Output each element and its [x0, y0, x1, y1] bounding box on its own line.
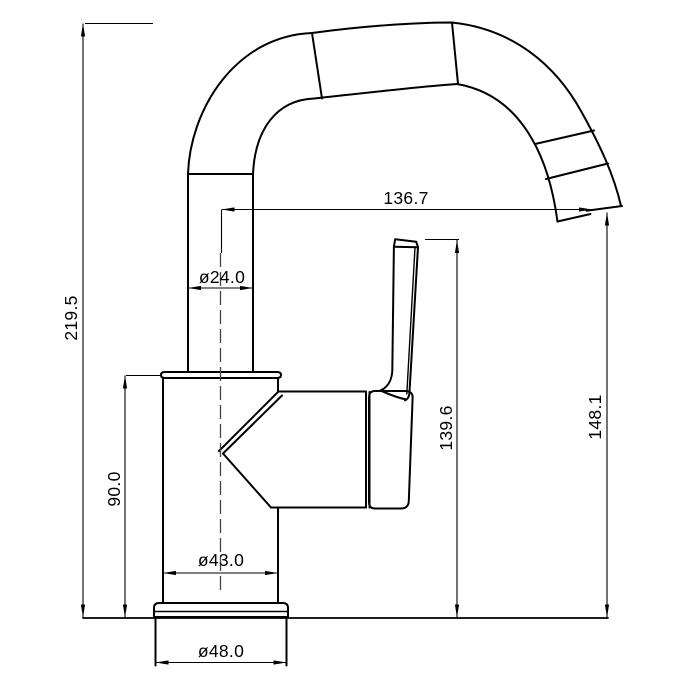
dim-label-pipe-diameter: ø24.0 [187, 268, 257, 286]
aerator-ring-line-2 [546, 164, 608, 180]
dim-label-handle-height: 139.6 [437, 393, 455, 463]
aerator-ring-line-1 [535, 131, 594, 145]
spout-joint-line-1 [312, 33, 322, 99]
spout-joint-line-2 [452, 23, 458, 85]
dim-total-height [83, 24, 153, 618]
dim-label-spout-reach: 136.7 [371, 189, 441, 207]
technical-drawing-canvas: 219.5 90.0 ø24.0 136.7 139.6 148.1 ø43.0… [0, 0, 690, 690]
body-notch-upper-a [219, 392, 278, 451]
dim-label-base-diameter: ø48.0 [186, 642, 256, 660]
base-flange [154, 603, 288, 617]
dim-label-outlet-height: 148.1 [586, 382, 604, 452]
handle-base [369, 391, 413, 509]
spout-tip-face [558, 206, 623, 222]
dim-label-body-diameter: ø43.0 [186, 551, 256, 569]
dim-label-total-height: 219.5 [62, 283, 80, 353]
handle-lever-cap-line [394, 247, 418, 248]
technical-drawing-svg [0, 0, 690, 690]
body-notch-lower [223, 454, 271, 508]
body-notch-upper-b [223, 396, 282, 454]
dimension-lines [83, 24, 607, 663]
dim-body-height [125, 376, 160, 618]
faucet-handle [271, 239, 418, 508]
dim-label-body-height: 90.0 [105, 454, 123, 524]
handle-lever [381, 239, 419, 400]
